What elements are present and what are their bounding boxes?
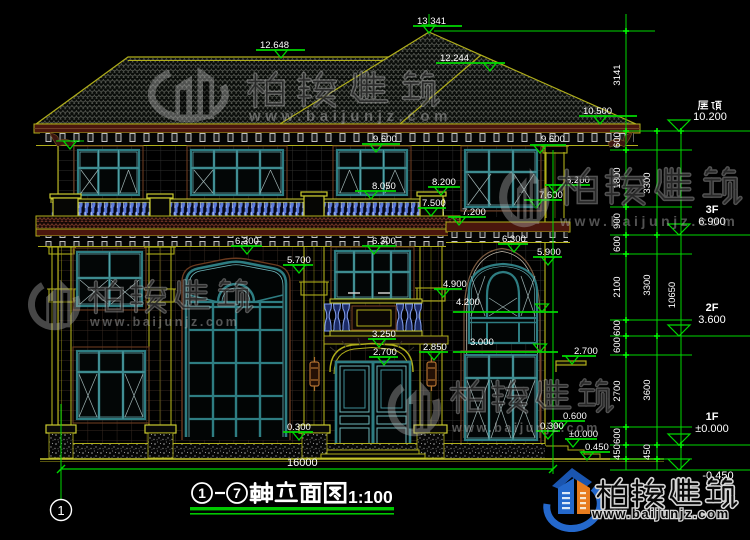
svg-text:450: 450 [642,444,653,460]
svg-text:1F: 1F [706,411,719,423]
svg-text:12.244: 12.244 [440,53,469,64]
svg-text:600: 600 [612,132,623,148]
svg-text:2700: 2700 [612,380,623,401]
svg-text:10.200: 10.200 [693,111,727,123]
svg-text:9.600: 9.600 [541,134,565,145]
svg-text:600: 600 [612,320,623,336]
svg-text:www.baijunjz.com: www.baijunjz.com [248,108,452,125]
svg-text:2100: 2100 [612,276,623,297]
svg-text:www.baijunjz.com: www.baijunjz.com [559,213,738,229]
svg-text:600: 600 [612,428,623,444]
svg-text:450: 450 [612,444,623,460]
svg-text:600: 600 [612,337,623,353]
svg-text:3600: 3600 [642,379,653,400]
svg-text:3.600: 3.600 [698,314,726,326]
svg-text:2F: 2F [706,302,719,314]
svg-text:www.baijunjz.com: www.baijunjz.com [89,315,239,329]
svg-text:www.baijunjz.com: www.baijunjz.com [591,506,730,521]
svg-text:1: 1 [198,485,206,501]
svg-text:10650: 10650 [667,282,678,308]
svg-text:1:100: 1:100 [348,487,393,507]
svg-text:www.baijunjz.com: www.baijunjz.com [451,421,600,435]
svg-text:4.200: 4.200 [456,297,480,308]
svg-text:3300: 3300 [642,274,653,295]
svg-text:1: 1 [57,503,64,518]
svg-text:600: 600 [612,236,623,252]
svg-text:±0.000: ±0.000 [695,423,729,435]
svg-text:16000: 16000 [287,457,318,469]
svg-text:3141: 3141 [612,64,623,85]
svg-text:7: 7 [233,485,241,501]
svg-text:3.000: 3.000 [470,337,494,348]
